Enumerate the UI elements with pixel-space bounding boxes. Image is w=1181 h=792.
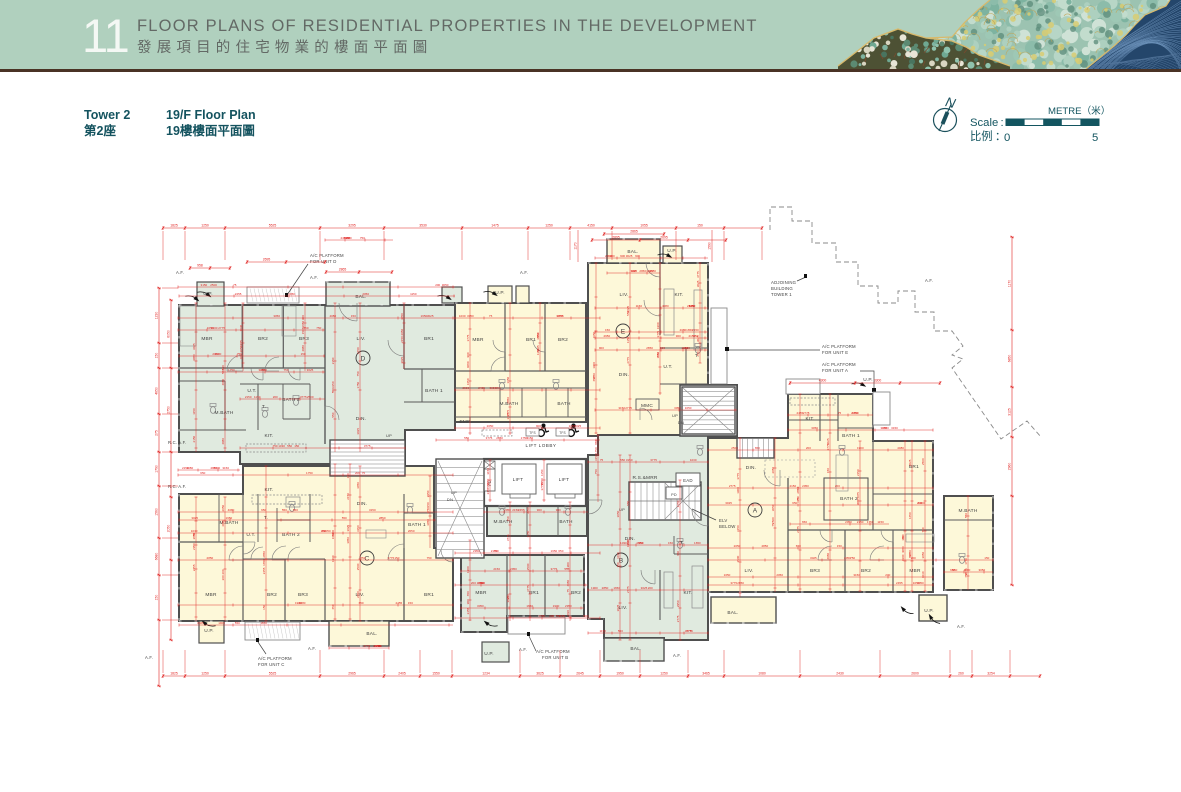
svg-text:650: 650: [558, 549, 563, 553]
svg-text:1650: 1650: [551, 549, 558, 553]
svg-text:200: 200: [435, 283, 440, 287]
svg-text:3050: 3050: [489, 386, 496, 390]
svg-text:1650: 1650: [626, 540, 630, 547]
svg-text:2600: 2600: [911, 671, 919, 675]
svg-text:2500: 2500: [526, 563, 530, 570]
svg-text:BELOW: BELOW: [719, 524, 736, 529]
svg-text:3050: 3050: [921, 552, 925, 559]
svg-text:2455: 2455: [486, 487, 490, 494]
svg-text:650: 650: [952, 568, 957, 572]
svg-text:U.P.: U.P.: [204, 628, 214, 634]
svg-text:3025: 3025: [427, 314, 434, 318]
svg-text:3254: 3254: [987, 671, 995, 675]
svg-text:3775: 3775: [540, 484, 544, 491]
svg-text:650: 650: [592, 376, 596, 381]
svg-text:2950: 2950: [473, 549, 480, 553]
svg-text:2500: 2500: [731, 446, 738, 450]
svg-text:BAL.: BAL.: [366, 631, 377, 637]
svg-text:4080: 4080: [221, 520, 225, 527]
svg-text:4080: 4080: [662, 304, 669, 308]
svg-text:1750: 1750: [306, 471, 313, 475]
svg-text:1900: 1900: [918, 501, 925, 505]
svg-text:2455: 2455: [262, 567, 266, 574]
svg-text:2430: 2430: [836, 671, 844, 675]
svg-text:2150: 2150: [857, 520, 864, 524]
svg-text:900: 900: [466, 599, 470, 604]
svg-text:PD: PD: [671, 493, 677, 497]
svg-text:EMP: EMP: [460, 419, 471, 425]
svg-text:150: 150: [408, 601, 413, 605]
svg-text:3530: 3530: [419, 223, 427, 227]
svg-text:TFS: TFS: [559, 431, 566, 435]
svg-text:3050: 3050: [442, 283, 449, 287]
svg-text:3150: 3150: [526, 530, 530, 537]
svg-text:A.F.: A.F.: [520, 270, 528, 275]
svg-text:3150: 3150: [891, 426, 898, 430]
svg-text:1900: 1900: [566, 562, 570, 569]
svg-text:2950: 2950: [676, 600, 680, 607]
svg-text:1234: 1234: [482, 671, 490, 675]
svg-text:550: 550: [282, 508, 287, 512]
svg-text:LIFT: LIFT: [559, 477, 570, 483]
svg-text:1750: 1750: [228, 368, 235, 372]
svg-text:3775: 3775: [696, 271, 700, 278]
svg-text:2950: 2950: [426, 490, 430, 497]
svg-text:3025: 3025: [616, 604, 620, 611]
svg-text:2775: 2775: [676, 615, 680, 622]
svg-text:2965: 2965: [348, 671, 356, 675]
svg-text:1650: 1650: [592, 331, 596, 338]
svg-text:3025: 3025: [908, 459, 912, 466]
svg-text:650: 650: [261, 508, 266, 512]
svg-text:900: 900: [583, 614, 588, 618]
svg-text:A/C PLATFORM: A/C PLATFORM: [822, 362, 856, 367]
svg-text:150: 150: [301, 329, 305, 334]
svg-text:650: 650: [594, 440, 598, 445]
svg-text:550: 550: [656, 352, 660, 357]
svg-text:3775: 3775: [736, 473, 740, 480]
svg-text:3150: 3150: [796, 496, 800, 503]
svg-text:750: 750: [316, 326, 321, 330]
svg-text:MBR: MBR: [205, 592, 217, 598]
svg-text:BR3: BR3: [298, 592, 308, 598]
svg-text:75: 75: [362, 471, 366, 475]
svg-text:KIT.: KIT.: [674, 292, 683, 298]
svg-text:750: 750: [360, 236, 365, 240]
svg-text:3150: 3150: [486, 468, 490, 475]
svg-text:1150: 1150: [877, 520, 884, 524]
svg-text:650: 650: [200, 471, 205, 475]
svg-text:550: 550: [464, 436, 469, 440]
svg-text:2455: 2455: [478, 386, 485, 390]
svg-text:3050: 3050: [356, 482, 360, 489]
svg-text:2850: 2850: [602, 586, 609, 590]
svg-text:75: 75: [233, 283, 237, 287]
svg-text:3025: 3025: [696, 280, 700, 287]
svg-text:2850: 2850: [737, 581, 744, 585]
svg-text:2850: 2850: [496, 436, 503, 440]
svg-text:2950: 2950: [288, 292, 295, 296]
svg-text:EAD: EAD: [683, 478, 693, 483]
svg-text:BR1: BR1: [529, 590, 539, 596]
svg-text:900: 900: [537, 508, 542, 512]
svg-text:2500: 2500: [736, 555, 740, 562]
svg-text:150: 150: [984, 556, 989, 560]
svg-text:1650: 1650: [466, 378, 470, 385]
svg-text:3050: 3050: [400, 313, 404, 320]
svg-text:1950: 1950: [616, 671, 624, 675]
svg-text:2050: 2050: [802, 484, 809, 488]
svg-text:4080: 4080: [228, 508, 235, 512]
svg-text:U.T.: U.T.: [663, 364, 672, 370]
svg-text:2775: 2775: [796, 526, 800, 533]
svg-text:150: 150: [837, 544, 842, 548]
svg-text:750: 750: [921, 527, 925, 532]
svg-text:1150: 1150: [254, 395, 261, 399]
svg-text:3775: 3775: [656, 330, 660, 337]
svg-text:3050: 3050: [978, 568, 985, 572]
svg-text:550: 550: [235, 621, 240, 625]
svg-text:FOR UNIT A: FOR UNIT A: [822, 368, 848, 373]
svg-text:2775: 2775: [826, 443, 830, 450]
svg-text:1900: 1900: [592, 362, 596, 369]
svg-text:550: 550: [620, 458, 625, 462]
svg-text:4080: 4080: [897, 446, 904, 450]
svg-text:150: 150: [668, 541, 673, 545]
svg-text:1170: 1170: [1008, 280, 1012, 287]
svg-text:1030: 1030: [191, 529, 198, 533]
svg-text:1750: 1750: [477, 581, 484, 585]
svg-text:3150: 3150: [594, 454, 598, 461]
svg-text:1030: 1030: [690, 458, 697, 462]
svg-text:3025: 3025: [810, 556, 817, 560]
svg-text:3025: 3025: [346, 524, 350, 531]
svg-text:1900: 1900: [218, 621, 225, 625]
svg-text:1150: 1150: [192, 408, 196, 415]
svg-text:3025: 3025: [192, 343, 196, 350]
svg-text:1650: 1650: [526, 604, 533, 608]
svg-text:3150: 3150: [526, 436, 533, 440]
svg-text:1030: 1030: [239, 352, 243, 359]
svg-text:3050: 3050: [239, 345, 243, 352]
svg-text:150: 150: [155, 353, 159, 359]
svg-text:2960: 2960: [1008, 463, 1012, 471]
svg-text:3625: 3625: [536, 671, 544, 675]
svg-text:2050: 2050: [408, 529, 415, 533]
svg-text:4080: 4080: [636, 541, 643, 545]
svg-text:2150: 2150: [245, 395, 252, 399]
svg-text:DIN.: DIN.: [357, 501, 367, 507]
svg-text:2150: 2150: [605, 254, 612, 258]
svg-text:UP: UP: [672, 413, 678, 418]
svg-text:1750: 1750: [538, 614, 545, 618]
svg-text:T.: T.: [262, 404, 266, 410]
svg-text:1590: 1590: [708, 242, 712, 250]
svg-text:150: 150: [301, 352, 306, 356]
svg-text:3050: 3050: [771, 504, 775, 511]
svg-text:UP: UP: [451, 490, 457, 495]
svg-text:3025: 3025: [641, 586, 648, 590]
svg-text:3050: 3050: [273, 314, 280, 318]
svg-text:1900: 1900: [553, 604, 560, 608]
svg-text:900: 900: [536, 424, 541, 428]
svg-text:4080: 4080: [192, 354, 196, 361]
svg-text:3150: 3150: [356, 525, 360, 532]
svg-text:150: 150: [506, 516, 510, 521]
svg-text:A/C PLATFORM: A/C PLATFORM: [310, 253, 344, 258]
svg-text:1250: 1250: [201, 223, 209, 227]
svg-text:3775: 3775: [730, 581, 737, 585]
svg-text:200: 200: [273, 395, 278, 399]
svg-text:2150: 2150: [676, 500, 680, 507]
svg-text:BR2: BR2: [571, 590, 581, 596]
svg-text:1900: 1900: [295, 601, 302, 605]
svg-text:550: 550: [964, 513, 968, 518]
svg-text:A: A: [753, 507, 758, 514]
svg-text:2950: 2950: [356, 591, 360, 598]
svg-text:3025: 3025: [626, 254, 633, 258]
svg-text:TFS: TFS: [529, 431, 536, 435]
svg-text:2150: 2150: [692, 328, 699, 332]
svg-text:75: 75: [600, 458, 604, 462]
svg-text:200: 200: [355, 471, 360, 475]
svg-text:550: 550: [221, 365, 225, 370]
svg-text:2050: 2050: [851, 411, 858, 415]
svg-text:5525: 5525: [269, 671, 277, 675]
svg-text:550: 550: [626, 310, 630, 315]
svg-text:2500: 2500: [356, 563, 360, 570]
svg-text:ELV: ELV: [719, 518, 727, 523]
svg-text:2455: 2455: [896, 581, 903, 585]
svg-text:1650: 1650: [908, 512, 912, 519]
svg-text:2850: 2850: [646, 346, 653, 350]
svg-text:550: 550: [342, 516, 347, 520]
svg-text:2405: 2405: [398, 671, 406, 675]
svg-text:4080: 4080: [680, 328, 687, 332]
svg-text:3150: 3150: [736, 525, 740, 532]
svg-text:2050: 2050: [487, 424, 494, 428]
svg-text:A.F.: A.F.: [957, 624, 965, 629]
svg-text:U.P.: U.P.: [484, 651, 494, 657]
svg-text:75: 75: [838, 411, 842, 415]
svg-text:3025: 3025: [191, 516, 198, 520]
svg-text:DN: DN: [678, 420, 684, 425]
svg-text:2775: 2775: [363, 644, 370, 648]
svg-text:2455: 2455: [518, 508, 525, 512]
svg-text:550: 550: [626, 500, 630, 505]
svg-text:U.P.: U.P.: [863, 377, 873, 383]
svg-text:LIV.: LIV.: [620, 292, 629, 298]
svg-text:2695: 2695: [263, 257, 271, 261]
svg-text:75: 75: [566, 589, 570, 593]
svg-text:2950: 2950: [603, 334, 610, 338]
svg-text:4080: 4080: [566, 580, 570, 587]
svg-text:1900: 1900: [736, 487, 740, 494]
svg-text:2865: 2865: [339, 267, 347, 271]
svg-text:3025: 3025: [574, 424, 581, 428]
svg-text:900: 900: [466, 352, 470, 357]
svg-text:3775: 3775: [506, 534, 510, 541]
svg-text:3775: 3775: [526, 585, 530, 592]
svg-text:4080: 4080: [329, 314, 336, 318]
svg-text:U.P.: U.P.: [667, 248, 677, 254]
svg-text:550: 550: [293, 508, 298, 512]
svg-text:75: 75: [771, 523, 775, 527]
svg-text:DIN.: DIN.: [746, 465, 756, 471]
svg-text:BUILDING: BUILDING: [771, 286, 793, 291]
svg-text:BATH 1: BATH 1: [425, 388, 443, 394]
svg-text:750: 750: [494, 549, 499, 553]
svg-text:1150: 1150: [540, 469, 544, 476]
svg-text:2050: 2050: [167, 525, 171, 533]
svg-text:3050: 3050: [811, 426, 818, 430]
svg-text:4080: 4080: [901, 546, 905, 553]
svg-text:1250: 1250: [545, 223, 553, 227]
svg-text:150: 150: [346, 473, 350, 478]
svg-text:3025: 3025: [356, 428, 360, 435]
svg-text:750: 750: [273, 444, 278, 448]
svg-text:150: 150: [697, 223, 703, 227]
svg-text:3025: 3025: [307, 368, 314, 372]
svg-text:900: 900: [660, 346, 665, 350]
svg-text:650: 650: [359, 601, 364, 605]
svg-text:150: 150: [262, 604, 266, 609]
svg-text:1030: 1030: [239, 324, 243, 331]
svg-text:550: 550: [486, 482, 490, 487]
svg-text:1900: 1900: [656, 322, 660, 329]
svg-text:BR3: BR3: [810, 568, 820, 574]
svg-text:2775: 2775: [803, 411, 810, 415]
svg-text:FOR UNIT E: FOR UNIT E: [822, 350, 848, 355]
svg-text:DIN.: DIN.: [619, 372, 629, 378]
svg-text:5525: 5525: [269, 223, 277, 227]
svg-text:3150: 3150: [369, 508, 376, 512]
svg-text:1900: 1900: [901, 554, 905, 561]
svg-text:4080: 4080: [301, 345, 305, 352]
svg-text:1650: 1650: [301, 321, 305, 328]
svg-text:3775: 3775: [550, 567, 557, 571]
svg-text:1150: 1150: [599, 629, 606, 633]
svg-text:750: 750: [616, 562, 620, 567]
svg-text:1150: 1150: [626, 336, 630, 343]
svg-text:4080: 4080: [466, 361, 470, 368]
svg-text:3050: 3050: [426, 519, 430, 526]
svg-text:6050: 6050: [167, 330, 171, 338]
svg-text:TOWER 1: TOWER 1: [771, 292, 792, 297]
svg-text:2050: 2050: [504, 508, 511, 512]
svg-text:1650: 1650: [694, 541, 701, 545]
svg-text:150: 150: [294, 444, 299, 448]
svg-text:2455: 2455: [466, 607, 470, 614]
svg-text:1650: 1650: [506, 376, 510, 383]
svg-text:3150: 3150: [201, 283, 208, 287]
svg-text:2775: 2775: [626, 586, 630, 593]
svg-text:LIFT LOBBY: LIFT LOBBY: [526, 443, 557, 448]
svg-text:3295: 3295: [348, 223, 356, 227]
svg-text:BR2: BR2: [558, 337, 568, 343]
svg-text:1900: 1900: [331, 555, 335, 562]
svg-text:MBR: MBR: [475, 590, 487, 596]
svg-text:3025: 3025: [400, 357, 404, 364]
svg-text:3050: 3050: [346, 537, 350, 544]
svg-text:550: 550: [287, 444, 292, 448]
svg-text:900: 900: [631, 269, 636, 273]
svg-text:BR2: BR2: [258, 336, 268, 342]
svg-text:2150: 2150: [192, 435, 196, 442]
svg-text:900: 900: [599, 346, 604, 350]
svg-text:U.P.: U.P.: [924, 608, 934, 614]
svg-text:1650: 1650: [685, 406, 692, 410]
svg-text:1250: 1250: [660, 671, 668, 675]
svg-text:900: 900: [301, 315, 305, 320]
svg-text:2850: 2850: [262, 551, 266, 558]
svg-text:900: 900: [635, 254, 640, 258]
svg-text:A/C PLATFORM: A/C PLATFORM: [822, 344, 856, 349]
svg-text:FOR UNIT D: FOR UNIT D: [310, 259, 337, 264]
svg-text:2050: 2050: [845, 520, 852, 524]
svg-text:2850: 2850: [796, 487, 800, 494]
svg-text:2950: 2950: [510, 567, 517, 571]
svg-text:1750: 1750: [426, 507, 430, 514]
svg-text:900: 900: [676, 334, 681, 338]
svg-text:1750: 1750: [867, 520, 874, 524]
svg-text:2850: 2850: [379, 516, 386, 520]
svg-text:R.S.&MRR: R.S.&MRR: [632, 475, 657, 481]
svg-text:3025: 3025: [696, 335, 700, 342]
svg-text:1790: 1790: [155, 465, 159, 473]
svg-text:75: 75: [321, 529, 325, 533]
svg-text:200: 200: [648, 586, 653, 590]
svg-text:2050: 2050: [362, 292, 369, 296]
svg-text:BATH 1: BATH 1: [842, 433, 860, 439]
svg-text:ADJOINING: ADJOINING: [771, 280, 797, 285]
svg-text:A.F.: A.F.: [145, 655, 153, 660]
svg-text:2850: 2850: [761, 544, 768, 548]
svg-text:1650: 1650: [207, 326, 214, 330]
svg-text:3775: 3775: [486, 436, 493, 440]
svg-text:3050: 3050: [674, 406, 681, 410]
svg-text:1080: 1080: [758, 671, 766, 675]
svg-text:1750: 1750: [964, 558, 968, 565]
svg-text:BATH 2: BATH 2: [282, 397, 300, 403]
svg-text:2150: 2150: [400, 336, 404, 343]
svg-text:3050: 3050: [467, 314, 474, 318]
svg-text:4650: 4650: [155, 387, 159, 395]
svg-text:LIV.: LIV.: [745, 568, 754, 574]
svg-text:3025: 3025: [506, 595, 510, 602]
svg-text:BR1: BR1: [526, 337, 536, 343]
svg-text:BR3: BR3: [299, 336, 309, 342]
svg-text:2775: 2775: [626, 357, 630, 364]
svg-text:1055: 1055: [640, 223, 648, 227]
svg-text:3775: 3775: [686, 629, 693, 633]
svg-text:2150: 2150: [346, 493, 350, 500]
svg-text:650: 650: [676, 551, 680, 556]
svg-text:2050: 2050: [844, 556, 851, 560]
svg-text:4150: 4150: [587, 223, 595, 227]
svg-text:2455: 2455: [192, 564, 196, 571]
svg-text:1650: 1650: [724, 573, 731, 577]
svg-text:3775: 3775: [650, 458, 657, 462]
svg-text:2150: 2150: [356, 347, 360, 354]
svg-text:KIT.: KIT.: [264, 433, 273, 439]
svg-text:1475: 1475: [491, 223, 499, 227]
svg-text:2950: 2950: [565, 604, 572, 608]
svg-text:2050: 2050: [734, 544, 741, 548]
svg-text:750: 750: [555, 614, 560, 618]
svg-text:3775: 3775: [387, 556, 394, 560]
svg-text:BR2: BR2: [861, 568, 871, 574]
